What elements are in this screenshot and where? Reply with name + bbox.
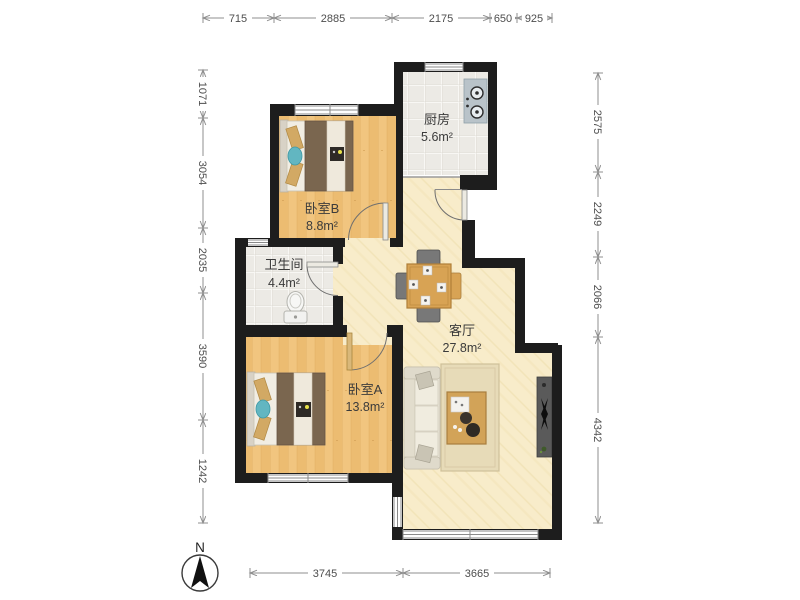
bedroomA-area: 13.8m² <box>346 400 385 414</box>
stove-knob-2 <box>466 105 469 108</box>
dim-top-1: 2885 <box>321 13 345 25</box>
dim-left-4: 1242 <box>196 459 208 483</box>
bathroom-area: 4.4m² <box>268 276 300 290</box>
east-step-wall-vertical <box>515 258 525 352</box>
stove-icon <box>464 79 487 123</box>
sofa <box>404 367 440 469</box>
entry-door-leaf <box>462 190 467 220</box>
dim-left-0: 1071 <box>196 82 208 106</box>
bedroomB-window <box>295 104 358 116</box>
kitchen-label: 厨房 <box>424 112 450 127</box>
bed-bedroomA <box>247 372 325 446</box>
stove-burner-1-center <box>475 91 479 95</box>
dim-right-2: 2066 <box>591 285 603 309</box>
bedB-tray-dot2 <box>333 151 335 153</box>
toilet-flush-button <box>294 315 297 318</box>
tray-item-2 <box>461 404 464 407</box>
bathroom-window <box>248 239 268 246</box>
bedB-round-cushion <box>288 147 302 165</box>
bedroomA-door-threshold <box>347 325 387 337</box>
east-outer-wall <box>552 345 562 540</box>
tv-plant-icon <box>542 447 547 452</box>
kitchen-bottom-wall <box>460 175 497 190</box>
kitchen-area: 5.6m² <box>421 130 453 144</box>
bedroomA-right-wall <box>392 325 403 473</box>
bed-bedroomB <box>280 120 353 192</box>
bathroom-right-wall-lower <box>333 296 343 330</box>
living-label: 客厅 <box>449 323 475 338</box>
bedroomB-left-wall <box>270 104 279 247</box>
coffee-cup-1 <box>453 425 457 429</box>
dim-left-1: 3054 <box>196 161 208 185</box>
living-south-window <box>403 529 538 540</box>
tv-plant-leaf <box>540 451 542 453</box>
coffee-table-kettle <box>460 412 472 424</box>
bedroomA-label: 卧室A <box>348 382 383 397</box>
bedroomB-door-stub-wall <box>390 238 403 247</box>
dimension-right: 2575 2249 2066 4342 <box>591 73 605 523</box>
tray-item-1 <box>455 401 458 404</box>
floor-plan-page: 厨房 5.6m² 卧室B 8.8m² 卫生间 4.4m² 客厅 27.8m² 卧… <box>0 0 800 600</box>
stove-burner-2-center <box>475 110 479 114</box>
dim-bottom-1: 3665 <box>465 568 489 580</box>
dim-right-3: 4342 <box>591 418 603 442</box>
floor-plan-canvas: 厨房 5.6m² 卧室B 8.8m² 卫生间 4.4m² 客厅 27.8m² 卧… <box>0 0 800 600</box>
coffee-cup-2 <box>458 428 462 432</box>
west-outer-wall <box>235 238 246 483</box>
bedroomA-door-leaf <box>347 333 352 370</box>
bedroomB-door-leaf <box>383 203 388 240</box>
bathroom-label: 卫生间 <box>264 257 303 272</box>
bedA-round-cushion <box>256 400 270 418</box>
bathroom-right-wall-upper <box>333 238 343 264</box>
east-step-wall-horizontal <box>515 343 558 353</box>
dim-top-0: 715 <box>229 13 247 25</box>
bedroomB-label: 卧室B <box>305 201 340 216</box>
bedroomA-top-wall <box>235 325 347 337</box>
compass-north-label: N <box>195 540 205 555</box>
dim-right-1: 2249 <box>591 202 603 226</box>
coffee-table-bowl <box>466 423 480 437</box>
bedA-tray-dot <box>305 405 309 409</box>
bedroomB-right-wall <box>396 104 403 247</box>
tv-speaker-dot <box>542 383 546 387</box>
bedB-tray-dot <box>338 150 342 154</box>
dim-top-3: 650 <box>494 13 512 25</box>
bathroom-door-threshold <box>333 264 343 296</box>
dimension-bottom: 3745 3665 <box>250 566 550 580</box>
bedroomA-window <box>268 473 348 483</box>
tv-unit <box>537 377 552 457</box>
dimension-top: 715 2885 2175 650 925 <box>203 11 552 25</box>
dim-top-2: 2175 <box>429 13 453 25</box>
living-area: 27.8m² <box>443 341 482 355</box>
sofa-pillow-bottom <box>415 445 433 463</box>
bedA-tray <box>296 402 311 417</box>
dimension-left: 1071 3054 2035 3590 1242 <box>196 70 210 523</box>
coffee-table <box>447 392 486 444</box>
bedA-tray-dot2 <box>299 406 301 408</box>
dim-left-3: 3590 <box>196 344 208 368</box>
living-west-window <box>393 497 402 527</box>
dim-bottom-0: 3745 <box>313 568 337 580</box>
dim-right-0: 2575 <box>591 110 603 134</box>
north-arrow-icon <box>191 556 209 588</box>
sofa-cushion-2 <box>415 406 438 431</box>
kitchen-window <box>425 62 463 72</box>
sofa-backrest <box>404 379 415 457</box>
stove-knob-1 <box>466 98 469 101</box>
bathroom-door-leaf <box>307 262 338 267</box>
dim-left-2: 2035 <box>196 248 208 272</box>
dim-top-4: 925 <box>525 13 543 25</box>
bedroomB-area: 8.8m² <box>306 219 338 233</box>
entry-wall-horizontal <box>462 258 522 268</box>
compass: N <box>182 540 218 591</box>
kitchen-right-wall <box>488 62 497 190</box>
coffee-table-tray <box>451 397 469 412</box>
bedB-tray <box>330 147 344 161</box>
